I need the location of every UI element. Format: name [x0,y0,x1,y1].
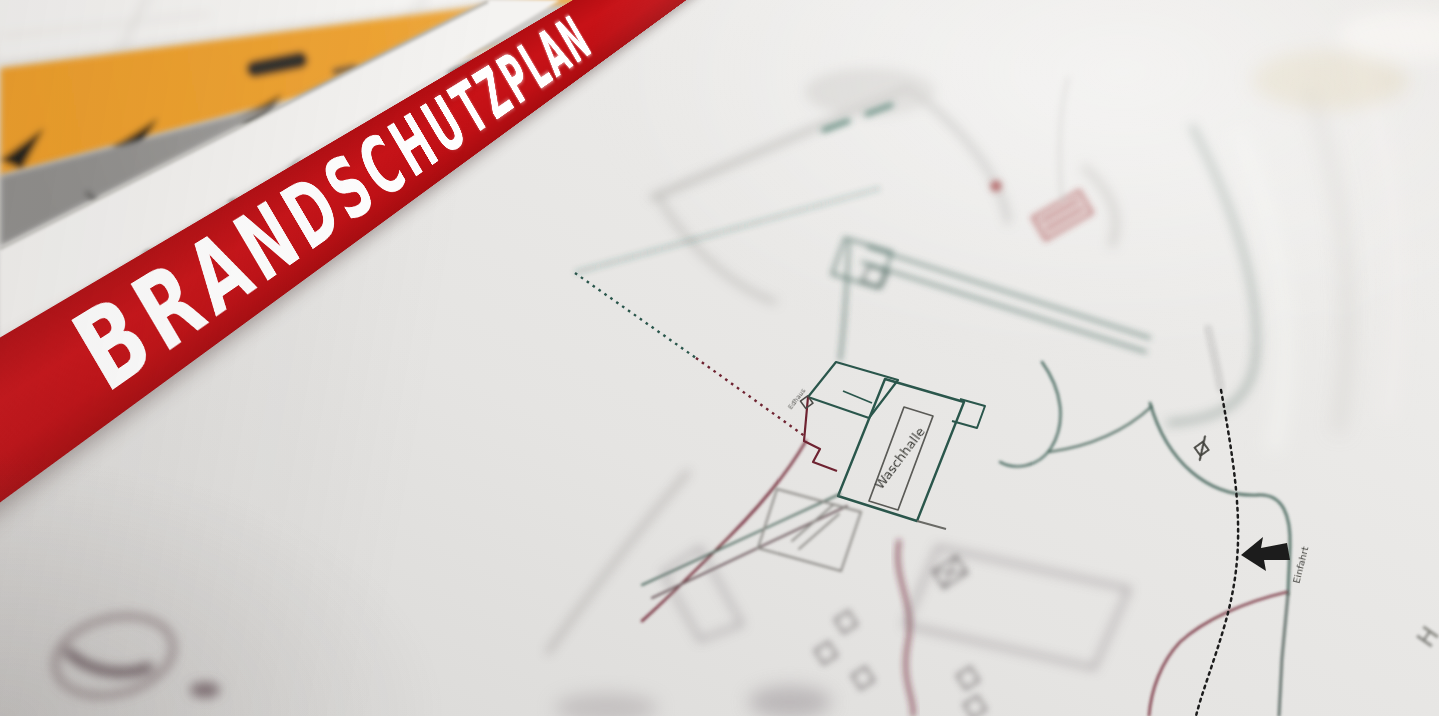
red-dot-symbol [991,181,1002,192]
plan-photo-svg: Waschhalle Edhaus Einfahrt H [0,0,1439,716]
brandschutzplan-photo: Waschhalle Edhaus Einfahrt H BRANDSCHUTZ… [0,0,1439,716]
